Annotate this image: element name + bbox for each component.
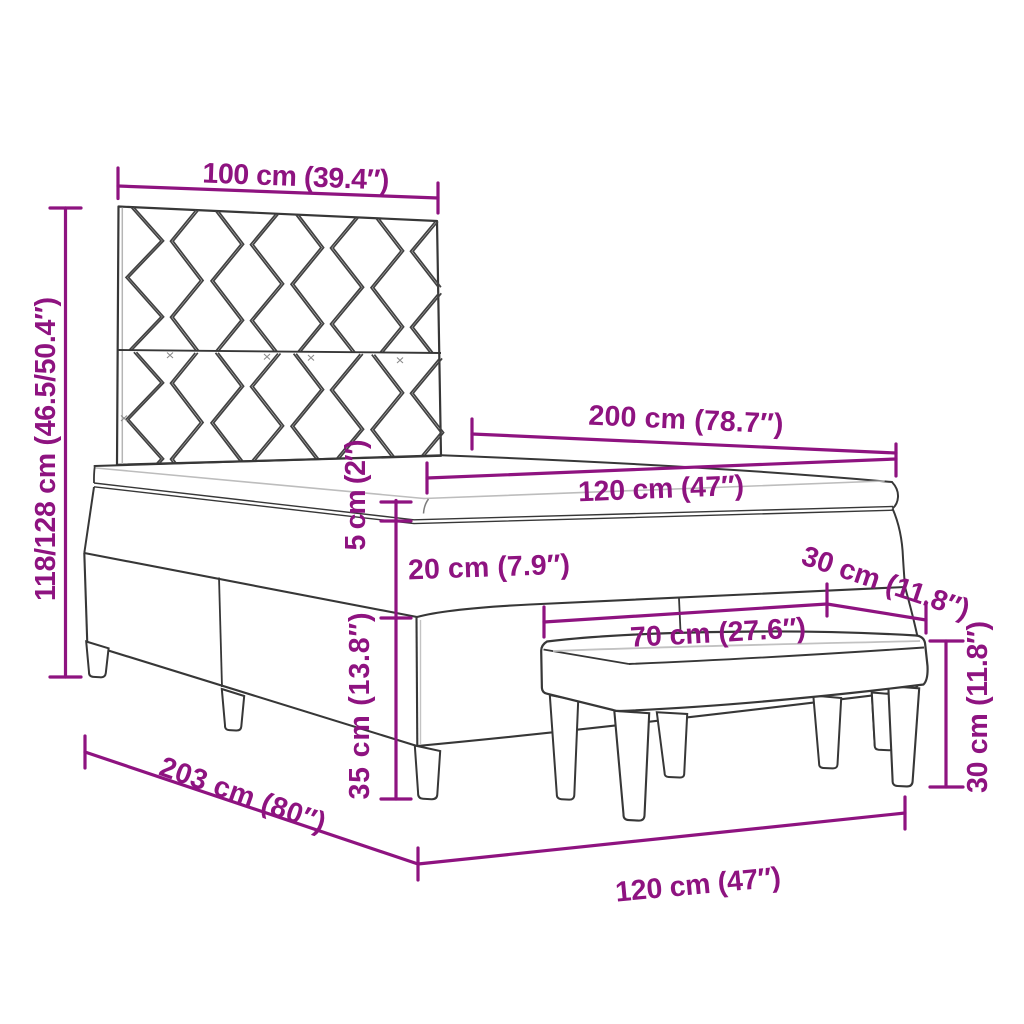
svg-text:118/128 cm (46.5/50.4″): 118/128 cm (46.5/50.4″) [30,297,62,601]
svg-text:20 cm (7.9″): 20 cm (7.9″) [408,549,571,587]
svg-text:5 cm (2″): 5 cm (2″) [340,440,372,551]
svg-text:30 cm (11.8″): 30 cm (11.8″) [962,621,994,793]
svg-text:35 cm (13.8″): 35 cm (13.8″) [344,613,376,800]
svg-text:120 cm (47″): 120 cm (47″) [577,470,744,509]
